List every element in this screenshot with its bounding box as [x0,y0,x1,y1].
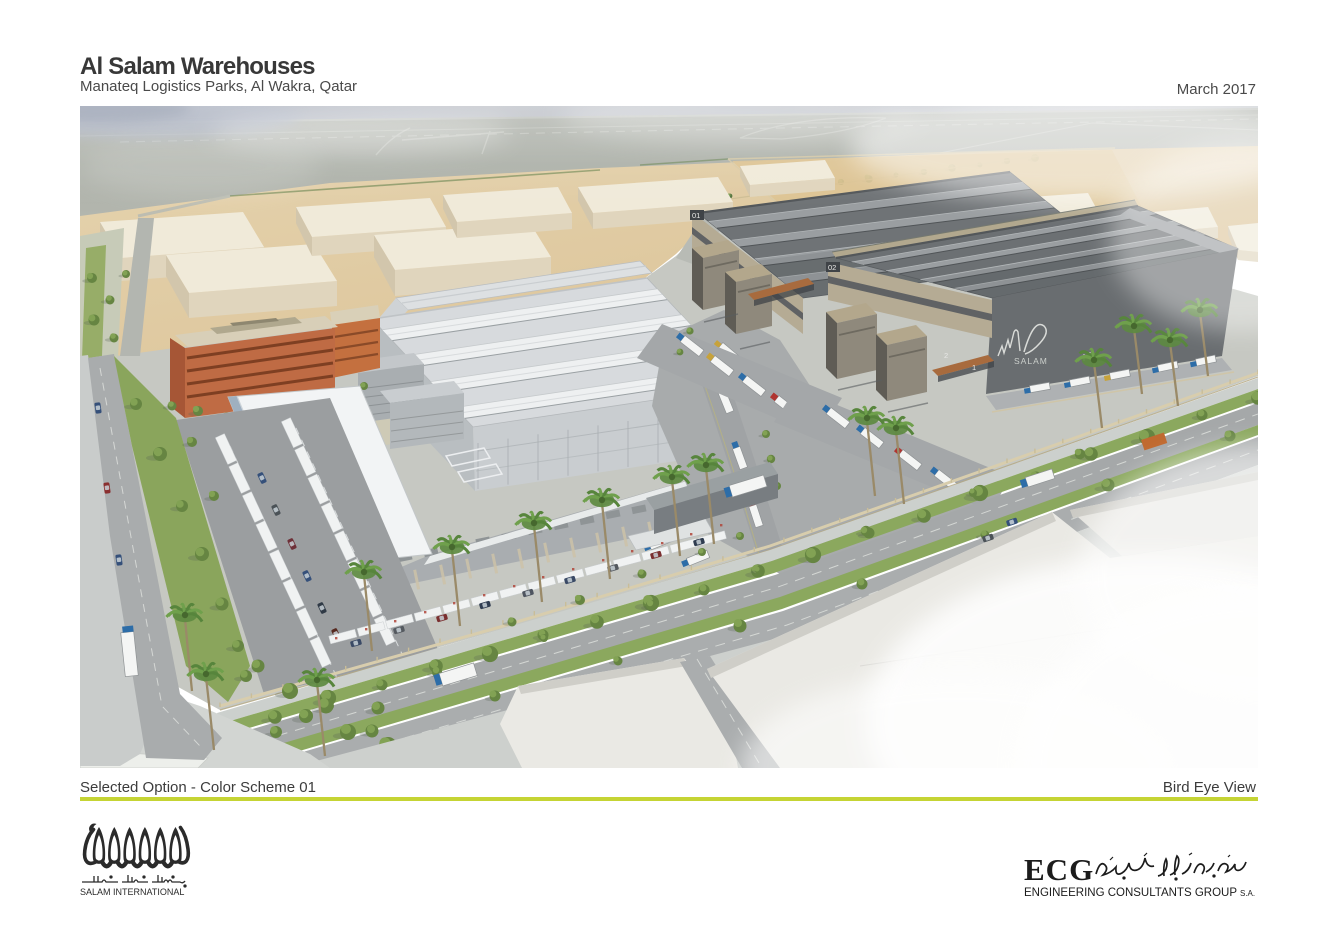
svg-text:SALAM: SALAM [1014,356,1048,366]
svg-text:ECG: ECG [1024,852,1094,887]
svg-text:SALAM INTERNATIONAL: SALAM INTERNATIONAL [80,887,184,897]
svg-text:01: 01 [692,211,700,220]
svg-text:ENGINEERING CONSULTANTS GROUP: ENGINEERING CONSULTANTS GROUP S.A. [1024,887,1255,899]
svg-text:2: 2 [944,351,948,360]
svg-text:02: 02 [828,263,836,272]
svg-text:1: 1 [972,363,976,372]
